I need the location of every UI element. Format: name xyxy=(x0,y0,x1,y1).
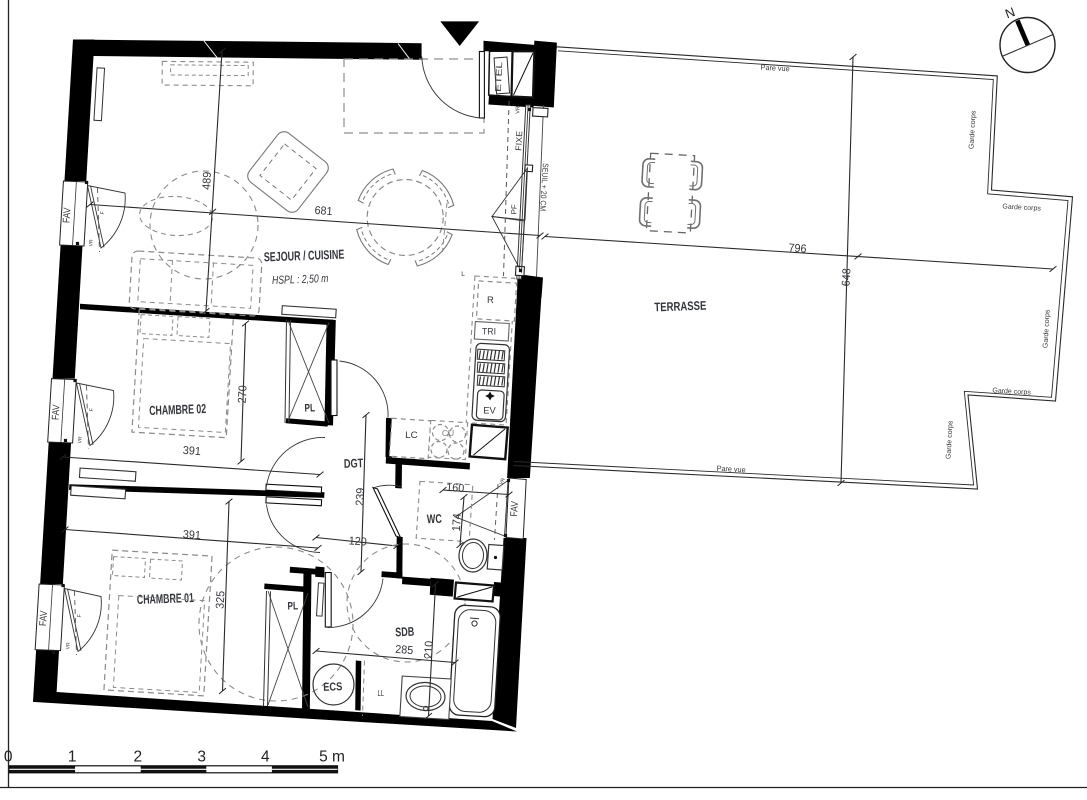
svg-text:FAV: FAV xyxy=(62,207,74,223)
svg-text:ETEL: ETEL xyxy=(493,61,505,92)
svg-text:391: 391 xyxy=(182,445,201,458)
svg-text:FIXE: FIXE xyxy=(513,130,524,151)
svg-text:174: 174 xyxy=(451,512,464,531)
svg-text:796: 796 xyxy=(788,242,807,255)
svg-text:FAV: FAV xyxy=(38,610,50,626)
svg-text:DGT: DGT xyxy=(344,456,364,471)
svg-text:Pare vue: Pare vue xyxy=(716,464,745,475)
svg-text:Pare vue: Pare vue xyxy=(760,63,789,74)
svg-text:681: 681 xyxy=(314,205,333,218)
svg-text:VR: VR xyxy=(88,239,94,247)
svg-text:CHAMBRE 02: CHAMBRE 02 xyxy=(149,401,206,418)
svg-text:PL: PL xyxy=(287,600,298,612)
svg-text:648: 648 xyxy=(840,268,853,287)
svg-text:VR: VR xyxy=(65,642,71,650)
svg-text:3: 3 xyxy=(197,749,206,766)
svg-text:LL: LL xyxy=(377,689,384,698)
svg-text:160: 160 xyxy=(446,482,465,495)
svg-text:5 m: 5 m xyxy=(319,749,345,766)
svg-text:PL: PL xyxy=(304,402,315,414)
svg-text:210: 210 xyxy=(423,641,436,660)
svg-text:CU: CU xyxy=(442,428,454,438)
svg-text:239: 239 xyxy=(354,488,367,507)
svg-text:EV: EV xyxy=(483,406,496,416)
svg-text:LC: LC xyxy=(405,430,418,441)
svg-text:1: 1 xyxy=(68,749,77,766)
svg-text:0: 0 xyxy=(4,749,13,766)
svg-text:4: 4 xyxy=(261,749,270,766)
svg-text:120: 120 xyxy=(348,535,367,548)
svg-text:WC: WC xyxy=(427,512,442,527)
svg-text:2: 2 xyxy=(133,749,142,766)
svg-text:TERRASSE: TERRASSE xyxy=(654,299,706,315)
svg-text:VR: VR xyxy=(77,436,83,444)
svg-text:489: 489 xyxy=(201,171,214,190)
svg-text:HSPL : 2,50 m: HSPL : 2,50 m xyxy=(272,273,329,287)
svg-text:VR: VR xyxy=(515,106,521,114)
svg-text:SDB: SDB xyxy=(395,625,414,640)
svg-text:PF: PF xyxy=(509,204,519,215)
svg-text:ECS: ECS xyxy=(323,681,343,694)
svg-text:TRI: TRI xyxy=(482,327,496,337)
svg-text:325: 325 xyxy=(215,591,228,610)
svg-text:L: L xyxy=(461,271,465,278)
svg-text:270: 270 xyxy=(237,385,250,404)
svg-text:SEJOUR / CUISINE: SEJOUR / CUISINE xyxy=(264,247,345,265)
svg-text:FAV: FAV xyxy=(51,404,63,420)
svg-text:391: 391 xyxy=(182,529,201,542)
svg-text:285: 285 xyxy=(395,644,414,657)
svg-text:FAV: FAV xyxy=(509,500,521,516)
svg-text:R: R xyxy=(487,295,494,306)
